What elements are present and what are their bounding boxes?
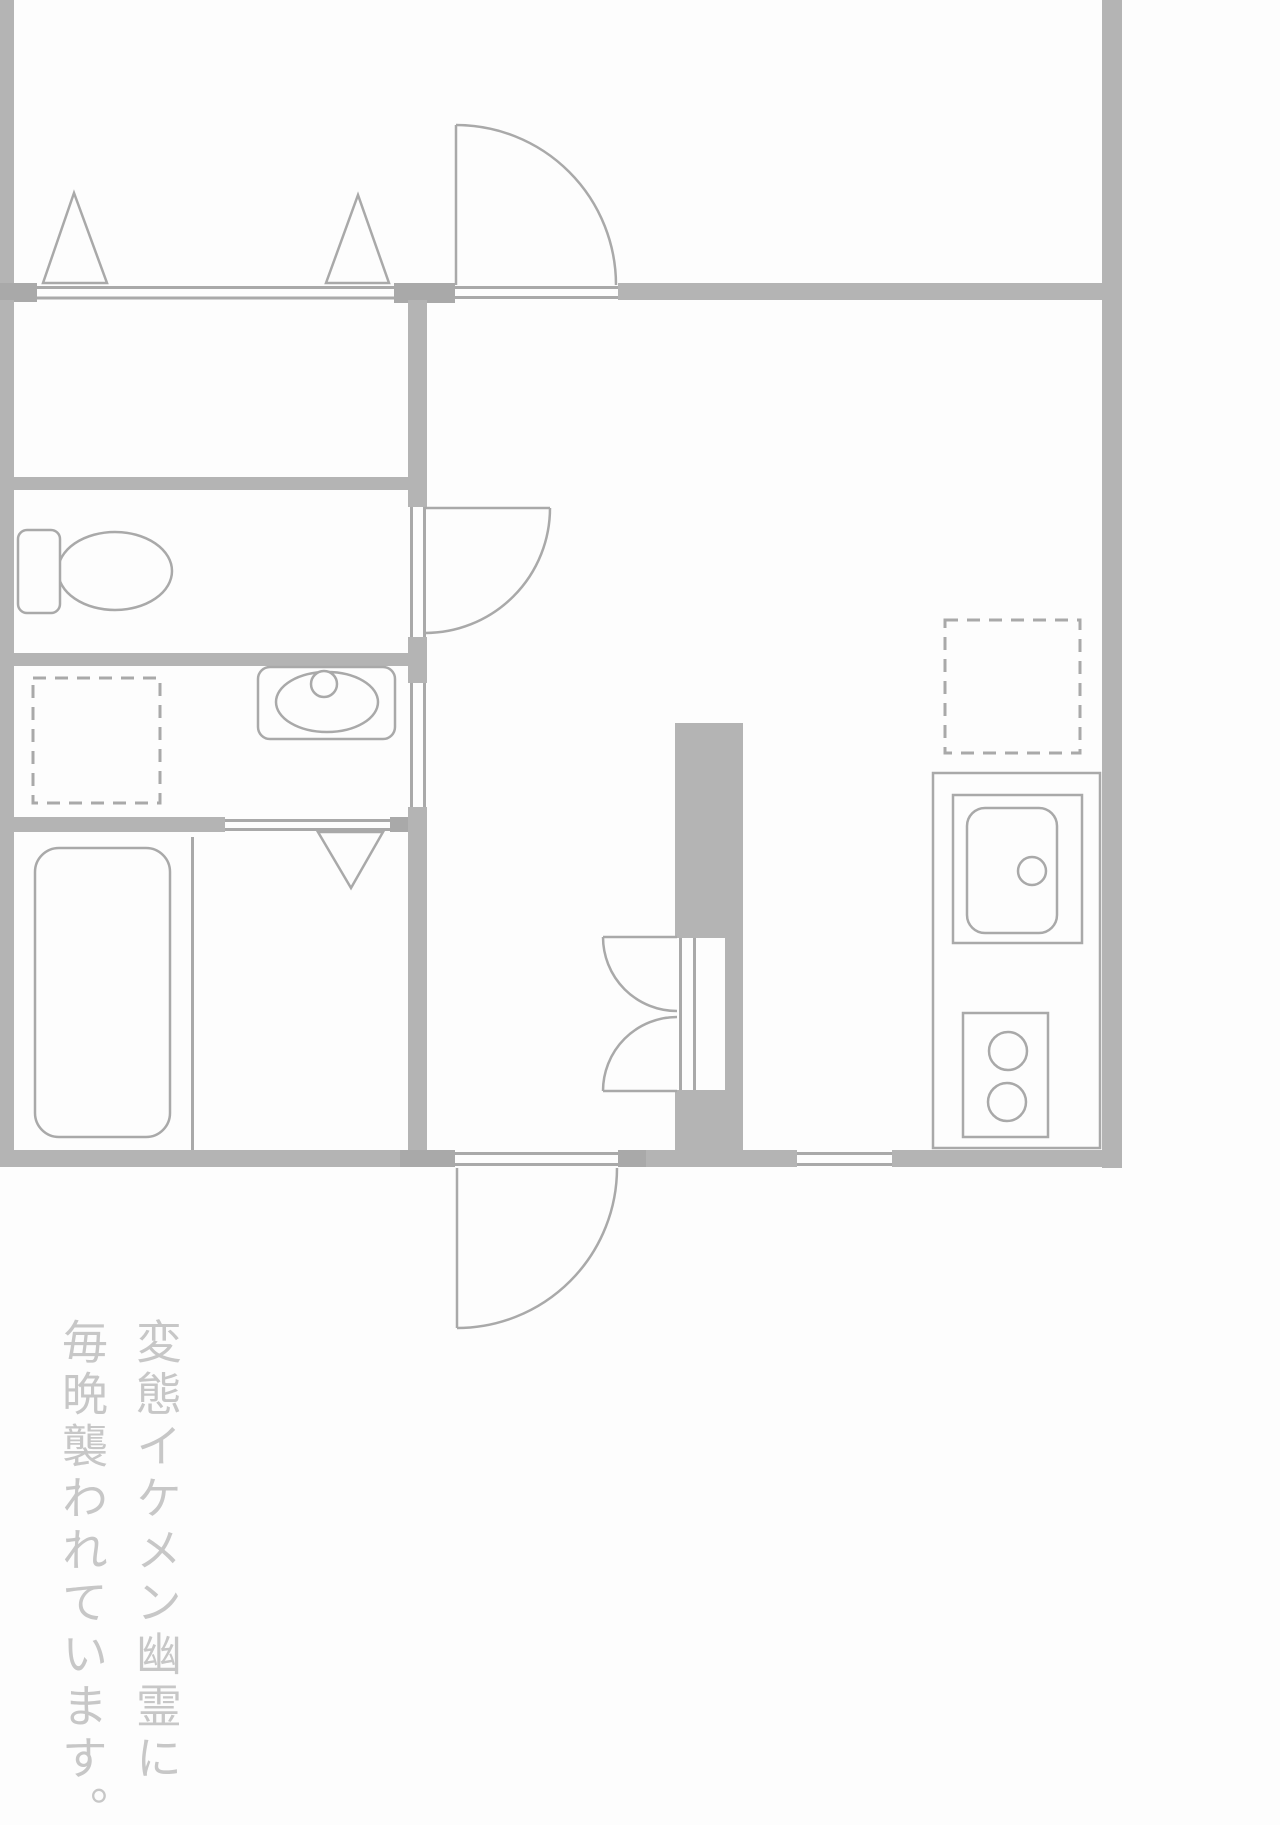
toilet-bowl — [58, 532, 172, 610]
toilet-bottom-wall — [13, 653, 408, 666]
back-door-sill — [455, 1154, 618, 1165]
left-wall-lower — [0, 300, 14, 1167]
closet-front-line — [37, 288, 394, 299]
bottom-door-left-pillar — [400, 1150, 455, 1167]
center-bar-right-strip — [725, 938, 743, 1090]
caption-line-1: 変態イケメン幽霊に — [119, 1318, 193, 1818]
bathtub-icon — [35, 848, 170, 1137]
toilet-door-icon — [425, 508, 550, 633]
bottom-door-right-pillar — [618, 1150, 646, 1167]
top-wall-right-section — [618, 283, 1102, 300]
washbasin-icon — [258, 667, 395, 739]
refrigerator-space-icon — [945, 620, 1080, 753]
stove-burner-1 — [989, 1032, 1027, 1070]
caption-line-2: 毎晩襲われています。 — [45, 1318, 119, 1818]
back-door-icon — [457, 1168, 617, 1328]
washbasin-faucet — [311, 671, 337, 697]
kitchen-window — [797, 1154, 892, 1165]
washroom-door-frame — [412, 683, 425, 807]
washing-machine-space-icon — [33, 678, 160, 803]
toilet-door-frame — [412, 507, 425, 637]
stove-burner-2 — [988, 1083, 1026, 1121]
bathroom-sliding-front — [225, 821, 390, 830]
toilet-icon — [18, 530, 172, 613]
hall-wall-segment-2 — [408, 637, 427, 683]
closet-double-door-frame — [681, 938, 695, 1090]
bottom-wall-left — [0, 1150, 455, 1167]
washroom-bottom-pillar — [390, 817, 408, 832]
toilet-tank — [18, 530, 60, 613]
kitchen-sink-drain — [1018, 857, 1046, 885]
hall-wall-segment-3 — [408, 807, 427, 1150]
caption-vertical-text: 変態イケメン幽霊に 毎晩襲われています。 — [45, 1318, 193, 1818]
closet-folding-door-triangle-2 — [326, 195, 389, 283]
closet-double-doors-icon — [603, 937, 677, 1091]
hall-wall-segment-1 — [408, 300, 427, 507]
left-wall-upper — [0, 0, 14, 290]
manga-page-floor-plan: 変態イケメン幽霊に 毎晩襲われています。 — [0, 0, 1280, 1825]
entrance-door-icon — [456, 125, 616, 285]
room-b-bottom-wall — [13, 477, 408, 490]
bathroom-folding-door-triangle — [318, 832, 383, 888]
center-bar-upper — [675, 723, 743, 938]
fixtures — [18, 530, 1100, 1148]
entrance-door-sill — [455, 288, 618, 298]
bottom-wall-right — [892, 1150, 1122, 1167]
right-wall — [1102, 0, 1122, 1168]
kitchen-counter-icon — [933, 773, 1100, 1148]
washroom-bottom-wall — [13, 817, 225, 832]
left-wall-pillar — [0, 283, 37, 302]
closet-folding-door-triangle-1 — [43, 193, 107, 283]
